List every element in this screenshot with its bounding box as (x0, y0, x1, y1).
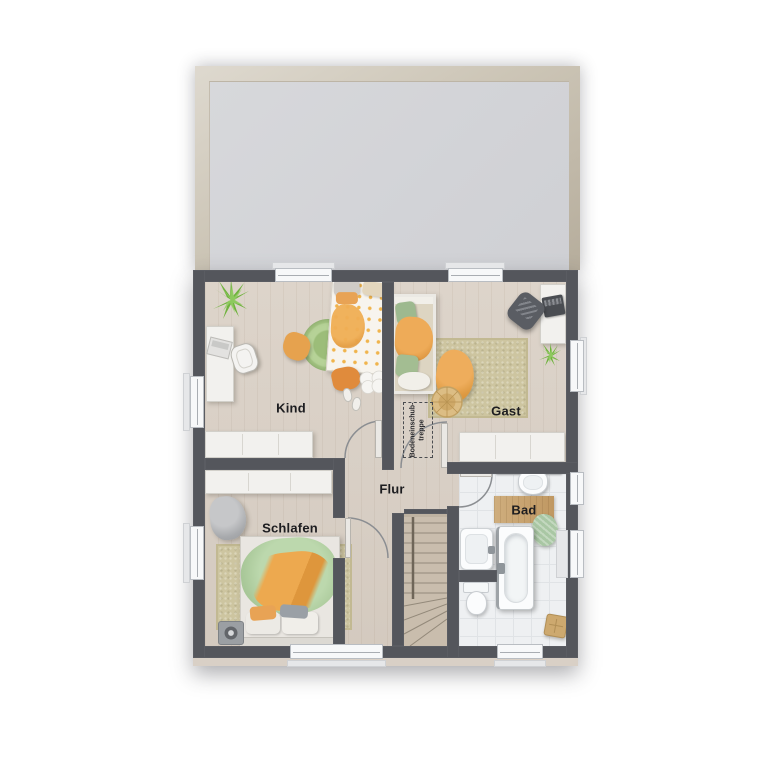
kind-wardrobe (205, 431, 313, 458)
window-kind-north (275, 268, 332, 282)
window-schlafen-south (290, 644, 383, 659)
schlafen-door-leaf (345, 518, 351, 558)
schlafen-wardrobe (205, 470, 332, 494)
room-label-schlafen: Schlafen (262, 521, 318, 536)
window-gast-north (448, 268, 503, 282)
window-schlafen-west (190, 526, 204, 580)
toilet-bowl (466, 591, 487, 615)
wall-stair-west (392, 513, 404, 646)
room-label-bad: Bad (511, 503, 536, 518)
kind-plant-icon (211, 279, 251, 321)
window-kind-west (190, 376, 204, 428)
wall-stair-east (447, 506, 459, 658)
gast-straw-hat (431, 386, 463, 418)
window-sill (287, 660, 386, 667)
wall-schlafen-flur-upper (333, 458, 345, 518)
gast-bed (392, 294, 436, 394)
kind-bed (326, 277, 390, 375)
gast-plant-icon (538, 343, 562, 367)
attic-hatch-label: Bodeneinschub- treppe (410, 403, 427, 458)
window-bad-south (497, 644, 543, 659)
gast-office-chair (509, 293, 543, 329)
wall-kind-gast (382, 282, 394, 470)
gast-laptop (541, 294, 565, 317)
bathtub (496, 526, 534, 610)
bad-stool (543, 613, 568, 638)
window-bad-east-lower (570, 530, 584, 578)
schlafen-bed (240, 536, 340, 648)
window-sill (494, 660, 546, 667)
attic-hatch-outline: Bodeneinschub- treppe (403, 402, 433, 458)
window-bad-east-upper (570, 472, 584, 505)
room-label-kind: Kind (276, 401, 306, 416)
wall-west (193, 270, 205, 658)
kind-door-leaf (375, 420, 382, 458)
bad-washbasin (460, 528, 493, 570)
floor-plan: Bodeneinschub- treppe (0, 0, 775, 775)
bad-half-wall (459, 570, 497, 582)
window-gast-east (570, 340, 584, 392)
window-sill (183, 523, 190, 583)
window-sill (183, 373, 190, 431)
bad-towel (532, 514, 558, 546)
room-label-gast: Gast (491, 404, 521, 419)
gast-sideboard (459, 432, 565, 462)
wall-schlafen-flur-lower (333, 558, 345, 646)
wall-bad-north (447, 462, 578, 474)
room-label-flur: Flur (379, 482, 404, 497)
wall-kind-schlafen (205, 458, 345, 470)
wall-north (193, 270, 578, 282)
schlafen-speaker (218, 621, 244, 645)
window-inner-sill (556, 530, 568, 578)
